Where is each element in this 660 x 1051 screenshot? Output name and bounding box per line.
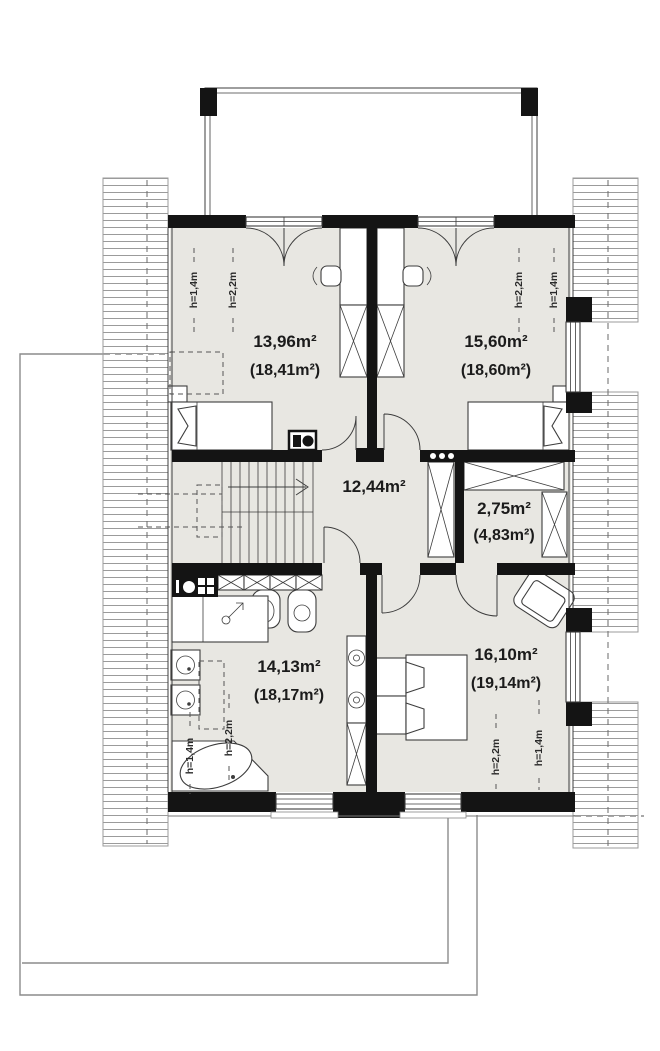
radiator-bench: [218, 575, 322, 590]
balcony-post-right: [521, 88, 538, 116]
washing-machine-2: [171, 685, 200, 715]
washbasin-icon: [183, 581, 195, 593]
area-label-top-right: 15,60m²: [464, 332, 528, 351]
bidet: [288, 590, 316, 632]
height-mark: h=1,4m: [533, 730, 545, 766]
area-label-top-left: 13,96m²: [253, 332, 317, 351]
balcony-post-left: [200, 88, 217, 116]
roof-hatch-left: [103, 178, 168, 846]
area-total-bedroom: (19,14m²): [471, 675, 541, 692]
washing-machine-1: [171, 650, 200, 680]
shower: [172, 596, 268, 642]
height-mark: h=2,2m: [223, 720, 235, 756]
vent-shaft: [347, 636, 366, 785]
height-mark: h=2,2m: [513, 272, 525, 308]
area-label-hall: 12,44m²: [342, 477, 406, 496]
pillow: [406, 662, 424, 693]
floor-plan: 13,96m² (18,41m²) 15,60m² (18,60m²) 12,4…: [0, 0, 660, 1051]
window-bottom-left: [271, 794, 338, 818]
height-mark: h=2,2m: [227, 272, 239, 308]
area-total-top-left: (18,41m²): [250, 362, 320, 379]
area-label-bedroom: 16,10m²: [474, 645, 538, 664]
area-label-wardrobe: 2,75m²: [477, 499, 531, 518]
drain: [231, 775, 235, 779]
wardrobe-top: [464, 462, 564, 490]
window-bottom-right: [400, 794, 466, 818]
window-right-top: [566, 322, 580, 392]
height-mark: h=2,2m: [490, 739, 502, 775]
window-right-bottom: [566, 632, 580, 702]
bed-bottom-right: [376, 655, 467, 740]
roof-hatch-right: [573, 178, 638, 848]
area-label-bathroom: 14,13m²: [257, 657, 321, 676]
pillow: [406, 703, 424, 734]
area-total-bathroom: (18,17m²): [254, 687, 324, 704]
wardrobe-right: [542, 492, 567, 557]
nightstand: [376, 658, 406, 696]
area-total-wardrobe: (4,83m²): [473, 527, 534, 544]
height-mark: h=1,4m: [548, 272, 560, 308]
balcony: [200, 88, 538, 215]
stair-wall-cabinet: [289, 431, 316, 450]
hall-closet: [428, 462, 454, 557]
bathroom-counter: [172, 575, 218, 597]
floor-plan-drawing: 13,96m² (18,41m²) 15,60m² (18,60m²) 12,4…: [0, 0, 660, 1051]
nightstand: [376, 696, 406, 734]
height-mark: h=1,4m: [188, 272, 200, 308]
height-mark: h=1,4m: [184, 738, 196, 774]
area-total-top-right: (18,60m²): [461, 362, 531, 379]
